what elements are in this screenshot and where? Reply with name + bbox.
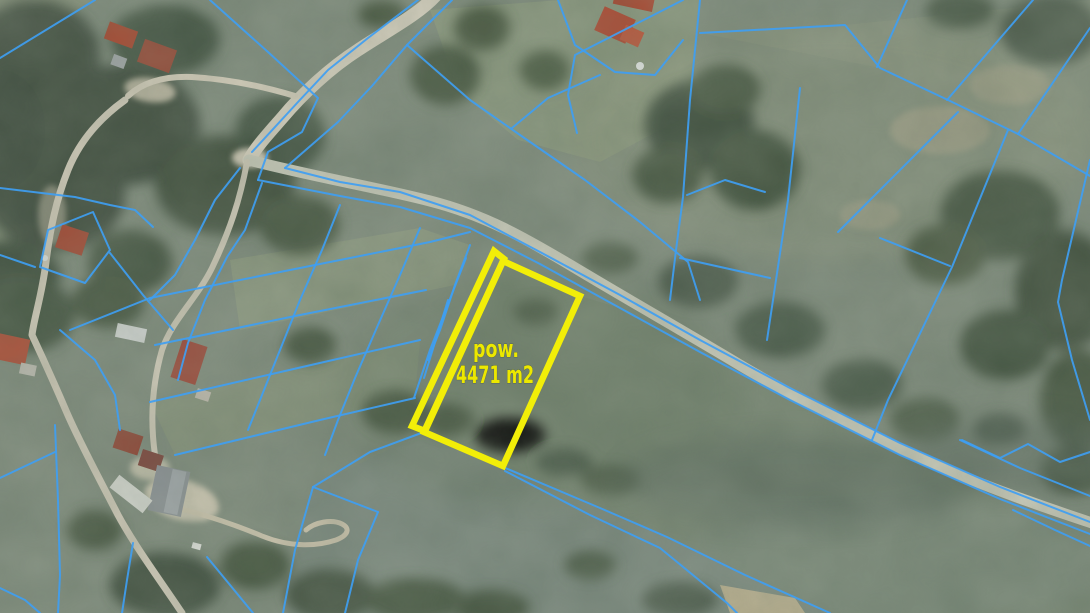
- texture-light: [0, 0, 1090, 613]
- aerial-map: pow. 4471 m2: [0, 0, 1090, 613]
- map-viewport[interactable]: pow. 4471 m2: [0, 0, 1090, 613]
- parcel-area-label-line1: pow.: [473, 335, 519, 363]
- parcel-area-label-line2: 4471 m2: [456, 361, 534, 389]
